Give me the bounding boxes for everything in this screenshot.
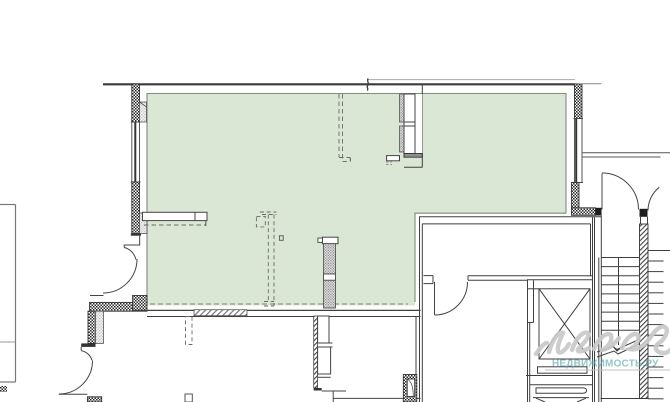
svg-text:НЕДВИЖИМОСТЬ.РУ: НЕДВИЖИМОСТЬ.РУ [552,359,659,370]
